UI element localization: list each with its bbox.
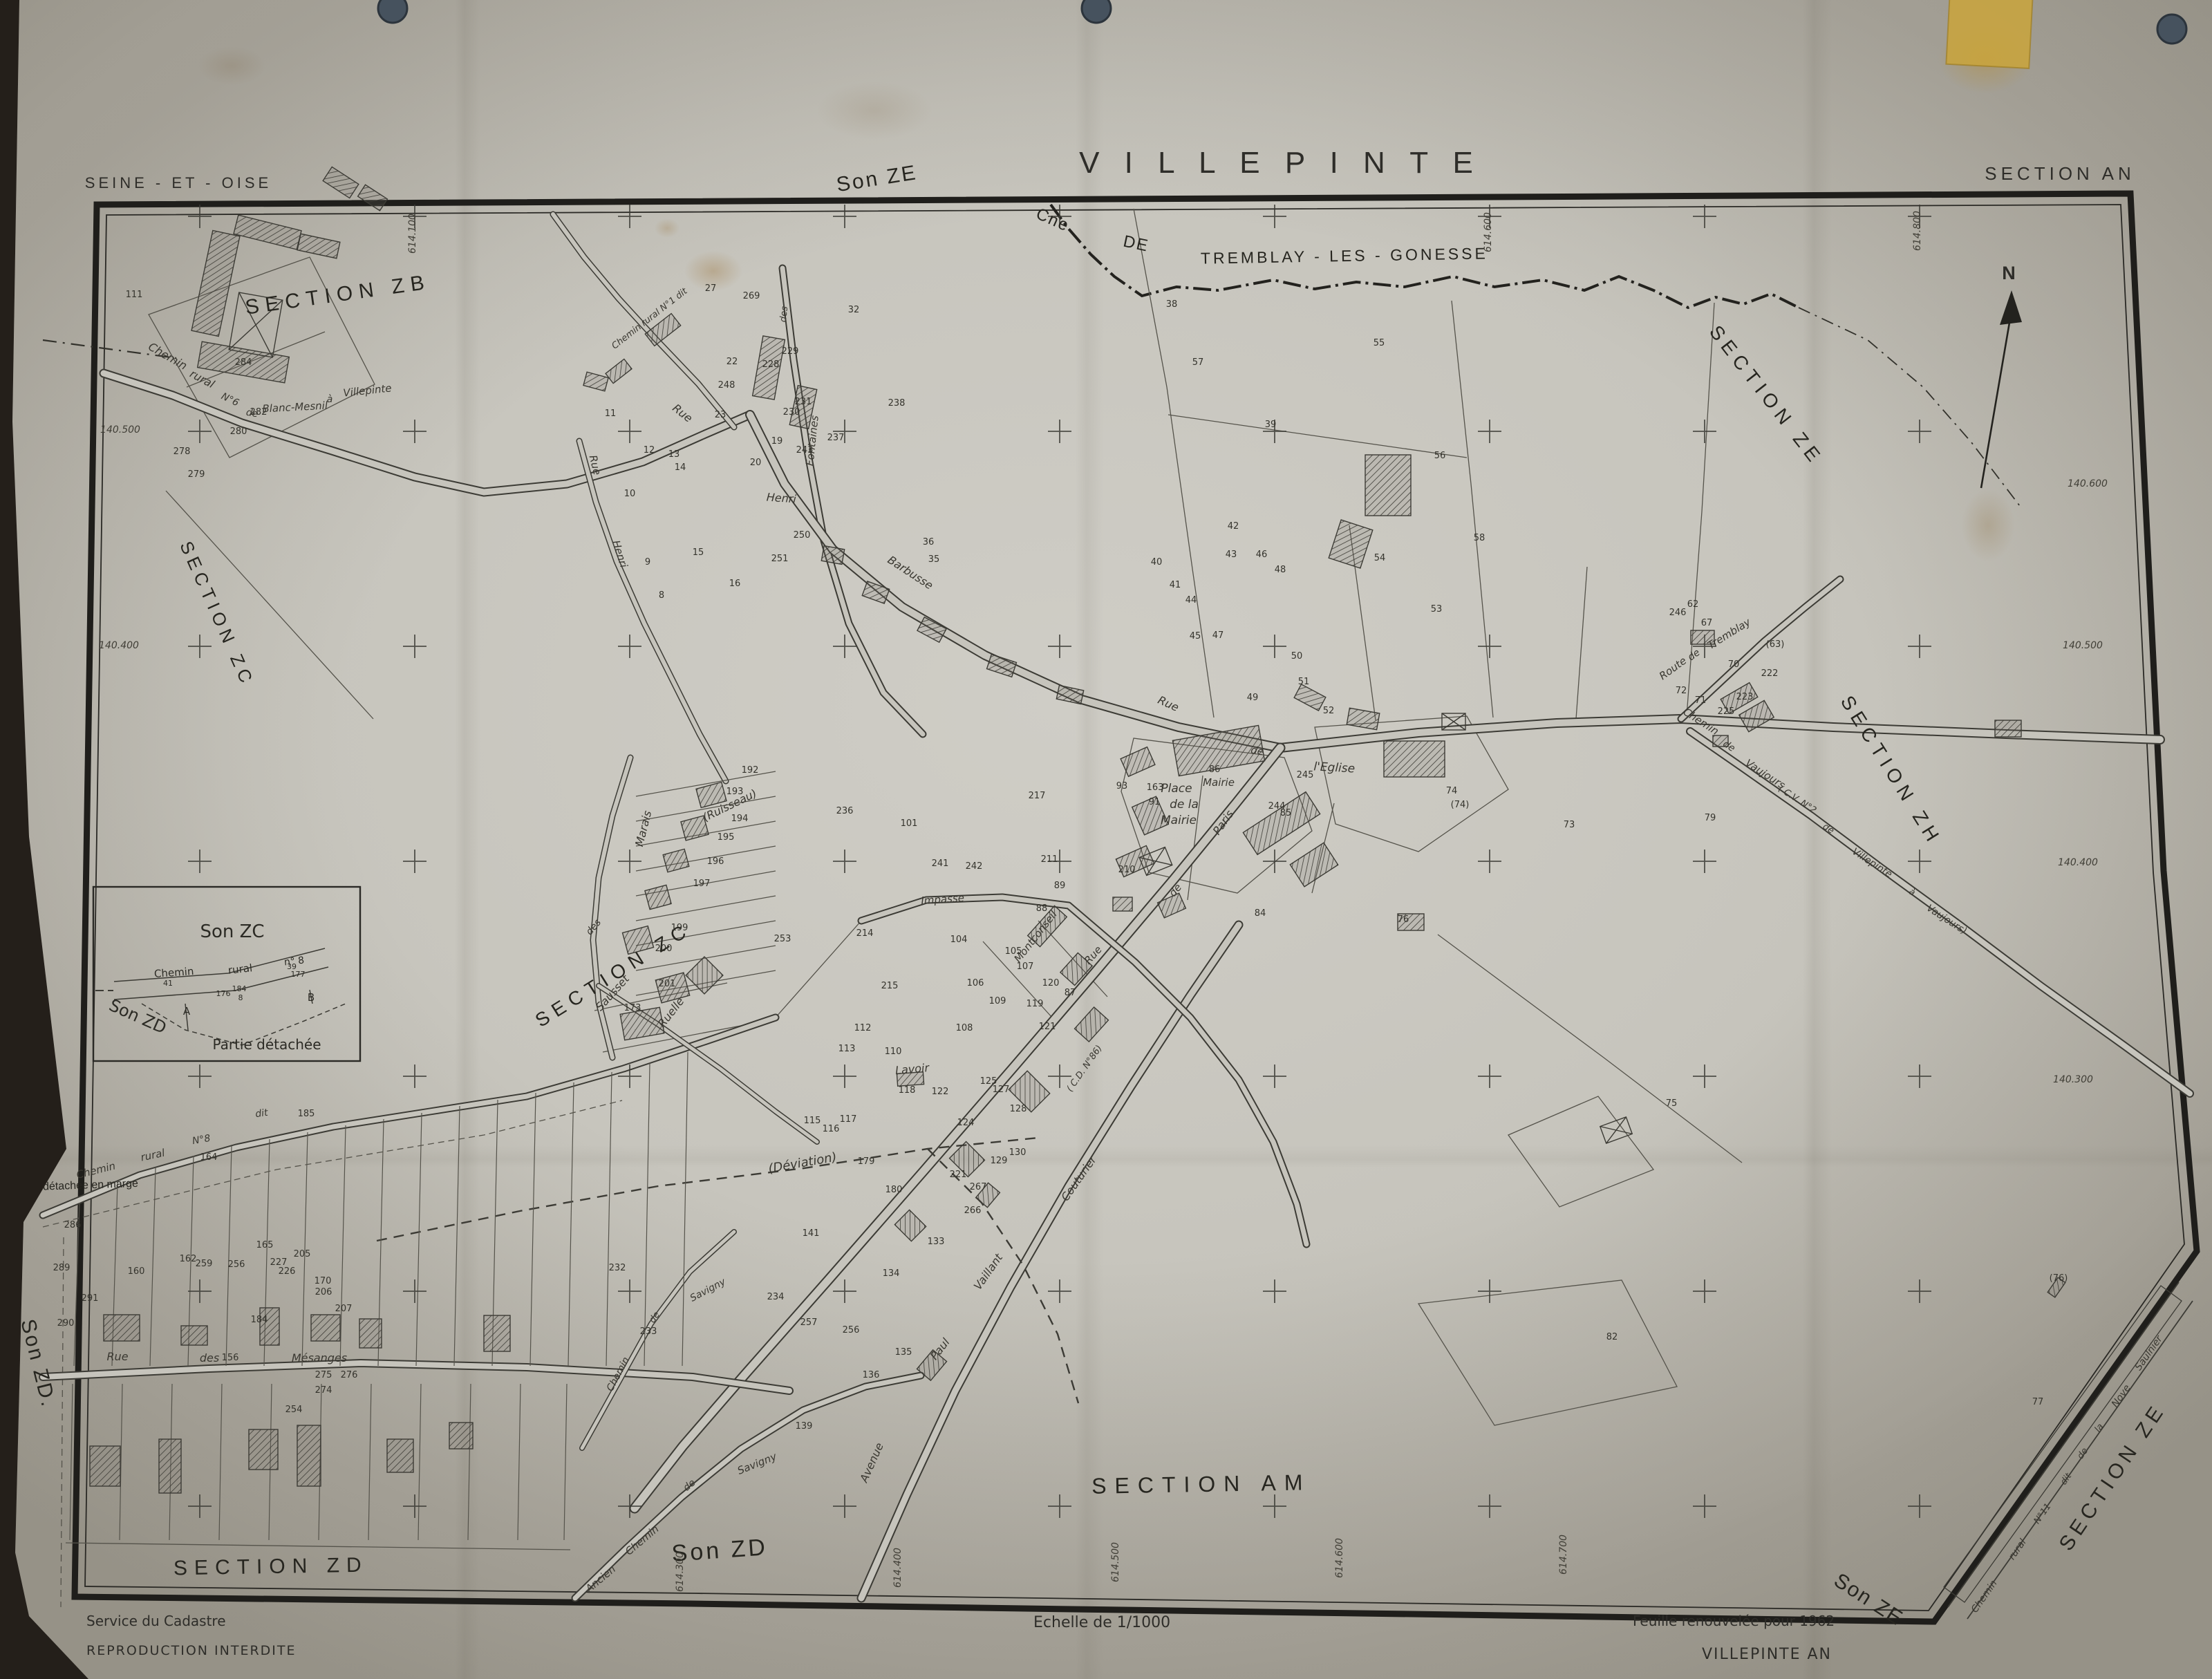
grid-cross [1048, 420, 1071, 443]
parcel-number: 242 [966, 861, 983, 872]
parcel-number: 112 [854, 1023, 872, 1033]
parcel-number: 40 [1151, 557, 1163, 568]
grid-cross [833, 1279, 856, 1303]
parcel-number: 223 [1736, 692, 1754, 702]
map-frame [75, 194, 2197, 1622]
grid-cross [188, 1064, 212, 1088]
grid-cross [1263, 635, 1286, 658]
road-label: Villepinte [1850, 846, 1894, 880]
grid-cross [403, 420, 427, 443]
parcel-number: 229 [782, 346, 799, 357]
parcel-number: 13 [668, 449, 680, 460]
parcel-number: 38 [1166, 299, 1178, 310]
section-label: Partie détachée en marge [11, 1178, 139, 1194]
parcel-number: 46 [1256, 550, 1268, 560]
parcel-number: 130 [1009, 1147, 1027, 1158]
grid-cross [1478, 1279, 1501, 1303]
grid-cross [1908, 1064, 1931, 1088]
parcel-number: 163 [1147, 782, 1164, 793]
building [1384, 741, 1445, 777]
road [579, 441, 726, 781]
parcel-number: 199 [671, 923, 688, 933]
buildings [90, 167, 2065, 1493]
parcel-number: 87 [1065, 988, 1076, 998]
coordinate-tick: 140.400 [99, 640, 139, 651]
building [159, 1439, 181, 1493]
road-label: Avenue [857, 1441, 886, 1485]
parcel-number: 192 [742, 765, 759, 776]
road-label: rural [2007, 1537, 2029, 1562]
parcel-number: 115 [804, 1116, 821, 1126]
parcel-number: 27 [705, 283, 717, 294]
building [1113, 897, 1132, 911]
parcel-number: 164 [200, 1152, 218, 1163]
parcel-number: 106 [967, 978, 984, 988]
road-label: N°6 [219, 391, 241, 409]
parcel-number: 205 [294, 1249, 311, 1259]
building [484, 1315, 510, 1351]
parcel-number: 9 [645, 557, 650, 568]
parcel-number: 50 [1291, 651, 1303, 662]
grid-cross [833, 205, 856, 228]
parcel-number: 127 [993, 1085, 1010, 1095]
road-label: Place [1161, 782, 1192, 796]
parcel-number: (76) [2050, 1273, 2068, 1284]
road-label: Mairie [1161, 814, 1197, 827]
parcel-number: 116 [823, 1124, 840, 1134]
parcel-number: 52 [1323, 706, 1335, 716]
coordinate-tick: 614.700 [1558, 1535, 1569, 1575]
parcel-number: 76 [1398, 914, 1409, 925]
section-label: Cne [1033, 205, 1073, 236]
parcel-number: 49 [1247, 693, 1259, 703]
section-label: SECTION ZC [176, 538, 259, 690]
inset-label: 39 [287, 962, 297, 971]
inset-label: 41 [163, 979, 173, 988]
binder-artifacts [378, 0, 2186, 68]
coordinate-tick: 614.300 [675, 1552, 686, 1592]
inset-label: Partie détachée [212, 1036, 321, 1053]
parcel-number: 234 [767, 1292, 785, 1302]
grid-cross [403, 1494, 427, 1518]
scanned-cadastral-sheet: { "header": { "department": "SEINE - ET … [0, 0, 2212, 1679]
road-label: Vaujours) [1924, 903, 1969, 937]
inset-label: A [183, 1005, 191, 1017]
parcel-number: 139 [796, 1421, 813, 1432]
parcel-number: 77 [2032, 1397, 2044, 1407]
sheet-title: V I L L E P I N T E [1079, 146, 1481, 180]
footer-service: Service du Cadastre [86, 1613, 226, 1629]
building [894, 1210, 926, 1241]
road-label: dit [254, 1107, 269, 1120]
strip-line [568, 1082, 574, 1366]
parcel-number: 200 [655, 944, 673, 954]
grid-cross [1693, 420, 1716, 443]
grid-cross [1908, 1279, 1931, 1303]
coordinate-tick: 614.400 [892, 1548, 903, 1588]
building [311, 1315, 340, 1341]
parcel-number: 162 [180, 1254, 197, 1264]
parcel-number: 269 [743, 291, 760, 301]
title-block: SEINE - ET - OISE V I L L E P I N T E SE… [85, 146, 2135, 191]
road-label: Henri [766, 491, 797, 506]
grid-cross [1478, 1494, 1501, 1518]
parcel-number: 42 [1228, 521, 1239, 532]
parcel-number: 128 [1010, 1104, 1027, 1114]
building [583, 372, 608, 391]
grid-cross [1048, 1279, 1071, 1303]
road [750, 415, 1280, 748]
section-an-label: SECTION AN [1985, 163, 2135, 184]
road-label: Mésanges [292, 1351, 347, 1364]
coordinate-ticks: 614.100614.600614.800614.300614.400614.5… [99, 211, 2108, 1592]
parcel-number: 121 [1039, 1022, 1056, 1032]
coordinate-tick: 140.500 [100, 424, 140, 435]
parcel-number: 141 [803, 1228, 820, 1239]
parcel-number: 111 [126, 290, 143, 300]
parcel-number: 248 [718, 380, 735, 391]
coordinate-tick: 140.600 [2068, 478, 2108, 489]
parcel-number: 47 [1212, 630, 1224, 641]
building [104, 1315, 140, 1341]
road-label: Couturier [1058, 1153, 1099, 1203]
parcel-number: 135 [895, 1347, 912, 1358]
parcel-number: 250 [794, 530, 811, 541]
parcel-number: 107 [1017, 962, 1034, 972]
building [645, 885, 671, 909]
parcel-number: 84 [1255, 908, 1266, 919]
inset-label: 184 [232, 984, 247, 993]
parcel-number: 228 [762, 359, 780, 370]
parcel-number: 257 [800, 1317, 818, 1328]
parcel-number: 16 [729, 579, 741, 589]
strip-line [219, 1384, 222, 1540]
parcel-number: 55 [1374, 338, 1385, 348]
road-label: N°11 [2032, 1501, 2054, 1526]
parcel-number: 197 [693, 879, 711, 889]
parcel-number: 73 [1564, 820, 1575, 830]
building [323, 167, 359, 198]
building [191, 230, 240, 336]
grid-cross [188, 420, 212, 443]
strip-line [606, 1072, 612, 1366]
parcel-number: 254 [285, 1405, 303, 1415]
parcel-number: 67 [1701, 618, 1713, 628]
building [663, 849, 689, 872]
parcel-number: 120 [1042, 978, 1060, 988]
parcel-number: 230 [783, 407, 800, 418]
grid-cross [1908, 1494, 1931, 1518]
strip-line [418, 1384, 421, 1540]
parcel-number: 214 [856, 928, 874, 939]
parcel-number: 259 [196, 1259, 213, 1269]
road-label: Mairie [1203, 776, 1235, 789]
parcel-number: 266 [964, 1206, 982, 1216]
strip-line [636, 846, 776, 871]
parcel-number: 194 [731, 814, 749, 824]
parcel-number: 222 [1761, 668, 1779, 679]
parcel-number: 86 [1209, 765, 1221, 775]
parcel-number: 215 [881, 981, 899, 991]
grid-cross [188, 205, 212, 228]
parcel-number: 75 [1666, 1098, 1678, 1109]
section-label: Son ZD. [16, 1317, 60, 1410]
parcel-number: 15 [693, 547, 704, 558]
parcel-number: 232 [609, 1263, 626, 1273]
building [1075, 1007, 1109, 1042]
coordinate-tick: 140.400 [2058, 857, 2098, 868]
section-label: SECTION ZH [1837, 692, 1947, 850]
parcel-number: 23 [715, 410, 727, 420]
inset-label: rural [227, 962, 253, 977]
building [234, 215, 301, 250]
map-annotation: (Déviation) [767, 1150, 838, 1176]
parcel-number: 156 [222, 1353, 239, 1363]
generated-labels: Son ZECneDETREMBLAY - LES - GONESSESECTI… [11, 161, 2171, 1630]
grid-cross [1478, 1064, 1501, 1088]
parcel-number: 88 [1036, 903, 1048, 914]
parcel-number: 122 [932, 1087, 949, 1097]
parcel-number: 32 [848, 305, 860, 315]
punch-hole [378, 0, 407, 23]
grid-cross [1693, 1494, 1716, 1518]
parcel-number: 243 [796, 445, 814, 456]
parcel-number: 286 [64, 1220, 82, 1230]
parcel-number: 253 [774, 934, 791, 944]
road-surface [579, 441, 726, 781]
north-arrow: N [1981, 263, 2022, 488]
parcel-number: 180 [885, 1185, 903, 1195]
parcel-number: 62 [1687, 599, 1699, 610]
grid-cross [1263, 1494, 1286, 1518]
parcel-number: 193 [727, 787, 744, 797]
parcel-number: 245 [1297, 770, 1314, 780]
parcel-number: 256 [228, 1259, 245, 1270]
road-label: Impasse [921, 892, 965, 907]
coordinate-tick: 614.800 [1912, 211, 1923, 251]
road-label: rural [140, 1146, 167, 1163]
parcel-number: 85 [1280, 808, 1292, 818]
north-label: N [2002, 263, 2016, 283]
coordinate-tick: 614.100 [407, 214, 418, 254]
cadastral-map: N SEINE - ET - OISE V I L L E P I N T E … [0, 0, 2212, 1679]
section-label: SECTION ZD [174, 1554, 368, 1580]
road-label: des [778, 306, 790, 323]
parcel-number: 133 [928, 1237, 945, 1247]
section-label: TREMBLAY - LES - GONESSE [1201, 244, 1488, 267]
road-label: de [1250, 744, 1265, 758]
parcel-number: 233 [640, 1326, 657, 1337]
parcel-number: 236 [836, 806, 854, 816]
parcel-number: 11 [605, 409, 617, 419]
parcel-number: 93 [1116, 781, 1128, 791]
grid-cross [188, 850, 212, 873]
parcel-number: 289 [53, 1263, 71, 1273]
grid-cross [618, 850, 641, 873]
parcel-number: 48 [1275, 565, 1286, 575]
grid-crosses [188, 205, 1931, 1518]
parcel-number: 89 [1054, 881, 1066, 891]
inset-label: Chemin [153, 965, 194, 980]
parcel-number: 44 [1185, 595, 1197, 606]
grid-cross [1693, 1279, 1716, 1303]
parcel-number: 256 [843, 1325, 860, 1335]
parcel-number: 278 [174, 447, 191, 457]
grid-cross [1693, 850, 1716, 873]
parcel-number: 57 [1192, 357, 1204, 368]
parcel-number: 14 [675, 462, 686, 473]
parcel-number: (74) [1451, 800, 1470, 810]
chemin-11-strip [1944, 1282, 2193, 1619]
parcel-number: 201 [659, 979, 676, 989]
parcel-number: 284 [235, 357, 252, 368]
building [606, 359, 632, 383]
road-label: Ancien [583, 1563, 618, 1595]
grid-cross [833, 850, 856, 873]
strip-line [454, 1106, 460, 1366]
grid-cross [403, 850, 427, 873]
parcel-number: 241 [932, 859, 949, 869]
parcel-number: 221 [950, 1170, 967, 1180]
grid-cross [188, 1494, 212, 1518]
parcel-number: 12 [644, 445, 655, 456]
strip-line [518, 1384, 521, 1540]
parcel-number: 185 [298, 1109, 315, 1119]
grid-cross [1908, 420, 1931, 443]
road-label: Savigny [688, 1276, 728, 1304]
department-label: SEINE - ET - OISE [85, 174, 272, 191]
parcel-number: 53 [1431, 604, 1443, 615]
parcel-number: 51 [1298, 677, 1310, 687]
road-label: à [327, 394, 333, 405]
road-label: Chemin [146, 340, 189, 373]
building [821, 546, 844, 565]
parcel-number: 237 [827, 433, 845, 443]
parcel-number: 70 [1728, 659, 1740, 670]
parcel-number: 56 [1434, 451, 1446, 461]
road-label: Rue [1156, 693, 1181, 714]
grid-cross [188, 1279, 212, 1303]
parcel-number: 110 [885, 1047, 902, 1057]
grid-cross [1048, 635, 1071, 658]
section-label: DE [1121, 232, 1150, 256]
parcel-number: 91 [1149, 797, 1161, 807]
coordinate-tick: 140.500 [2063, 640, 2103, 651]
parcel-number: 160 [128, 1266, 145, 1277]
strip-line [368, 1384, 371, 1540]
inset-label: Son ZC [200, 921, 264, 942]
building [449, 1423, 473, 1449]
parcel-number: 291 [82, 1293, 99, 1304]
inset-label: 176 [216, 989, 231, 998]
parcel-number: 173 [624, 1003, 641, 1013]
parcel-number: 280 [230, 426, 247, 437]
grid-cross [1048, 1494, 1071, 1518]
building [1329, 520, 1373, 568]
grid-cross [403, 1064, 427, 1088]
road-label: de la [1170, 798, 1199, 812]
parcel-number: 251 [771, 554, 789, 564]
inset-label: B [308, 991, 315, 1004]
parcel-number: 184 [251, 1315, 268, 1325]
footer-block: Service du Cadastre REPRODUCTION INTERDI… [86, 1613, 1835, 1663]
road-label: Rue [670, 402, 695, 425]
building [359, 1319, 382, 1348]
parcel-number: 231 [795, 397, 812, 407]
parcel-number: 82 [1606, 1332, 1618, 1342]
parcel-number: 217 [1029, 791, 1046, 801]
parcel-number: 108 [956, 1023, 973, 1033]
parcel-number: (63) [1766, 639, 1785, 650]
grid-cross [188, 635, 212, 658]
road-label: dit [2059, 1471, 2074, 1487]
grid-cross [1263, 850, 1286, 873]
road-label: ( C.D. N°86) [1065, 1044, 1104, 1094]
grid-cross [403, 1279, 427, 1303]
grid-cross [833, 1064, 856, 1088]
grid-cross [618, 205, 641, 228]
parcel-number: 276 [341, 1370, 358, 1380]
road-label: des [200, 1351, 219, 1364]
crossed-structures [229, 292, 1632, 1143]
grid-cross [1693, 205, 1716, 228]
parcel-number: 207 [335, 1304, 353, 1314]
parcel-number: 129 [991, 1156, 1008, 1166]
parcel-number: 195 [718, 832, 735, 843]
parcel-number: 113 [838, 1044, 856, 1054]
inset-detached-part [93, 887, 360, 1061]
building [862, 581, 889, 603]
grid-cross [833, 1494, 856, 1518]
parcel-number: 170 [315, 1276, 332, 1286]
coordinate-tick: 614.600 [1334, 1538, 1345, 1578]
road-label: l'Eglise [1313, 760, 1356, 776]
grid-cross [618, 1279, 641, 1303]
road-label: de [1686, 647, 1703, 663]
building [1365, 455, 1411, 516]
strip-line [530, 1093, 536, 1366]
inset-label: 8 [238, 993, 243, 1002]
parcel-number: 179 [858, 1156, 875, 1167]
parcel-number: 274 [315, 1385, 332, 1396]
parcel-number: 41 [1170, 580, 1181, 590]
map-annotations: Lavoir(Ruisseau)(Déviation)MaraisdesSaus… [584, 787, 930, 1176]
road-label: Rue [106, 1350, 128, 1363]
parcel-number: 282 [250, 407, 268, 418]
building [181, 1326, 207, 1345]
parcel-number: 104 [950, 935, 968, 945]
road-label: Chemin [623, 1523, 662, 1558]
parcel-number: 210 [1118, 865, 1136, 875]
parcel-number: 39 [1265, 420, 1277, 430]
parcel-number: 74 [1446, 786, 1458, 796]
parcel-number: 119 [1027, 999, 1044, 1009]
parcel-number: 58 [1474, 533, 1485, 543]
grid-cross [1263, 1064, 1286, 1088]
section-labels: Son ZECneDETREMBLAY - LES - GONESSESECTI… [11, 161, 2171, 1630]
parcel-number: 165 [256, 1240, 274, 1250]
parcel-number: 279 [188, 469, 205, 480]
section-label: Son ZE [835, 161, 919, 196]
parcel-number: 211 [1041, 854, 1058, 865]
building [90, 1446, 120, 1486]
building [1056, 685, 1083, 704]
punch-hole [1082, 0, 1111, 23]
punch-hole [2157, 15, 2186, 44]
strip-line [340, 1125, 346, 1366]
section-label: SECTION AM [1091, 1470, 1311, 1499]
building [1294, 684, 1326, 711]
